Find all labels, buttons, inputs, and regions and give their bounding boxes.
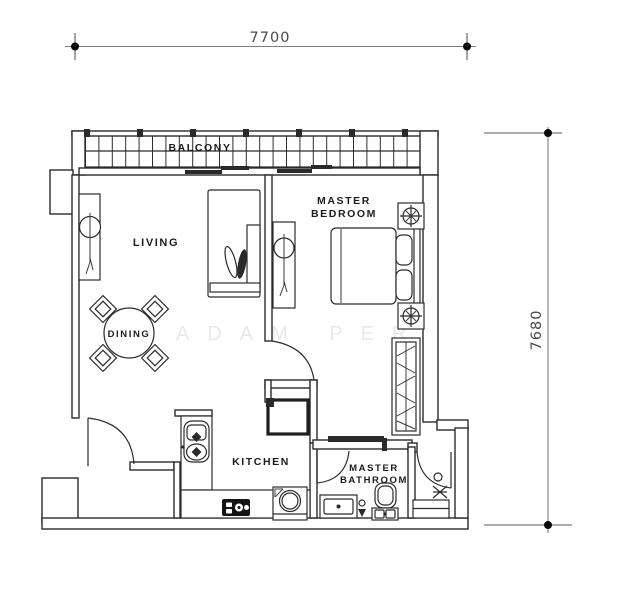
utility-cabinet bbox=[413, 500, 449, 518]
floor-lamp-living bbox=[79, 194, 101, 280]
dimension-right: 7680 bbox=[484, 127, 572, 533]
label-master-bedroom-1: MASTER bbox=[317, 195, 371, 207]
nightstand-top bbox=[398, 203, 424, 229]
sofa-console bbox=[208, 190, 260, 297]
cooktop bbox=[222, 499, 250, 516]
dimension-top-value: 7700 bbox=[250, 30, 291, 46]
label-balcony: BALCONY bbox=[168, 142, 231, 154]
shaft-column bbox=[266, 398, 308, 434]
bedroom-door bbox=[272, 341, 314, 380]
label-master-bathroom-1: MASTER bbox=[349, 463, 399, 474]
floor-plan-canvas: ADAM PERN 7700 7680 bbox=[0, 0, 623, 600]
floor-lamp-bedroom bbox=[273, 222, 295, 308]
kitchen-sink bbox=[181, 421, 209, 462]
entry-door bbox=[88, 418, 134, 466]
label-kitchen: KITCHEN bbox=[232, 456, 290, 468]
floor-trap-icon bbox=[358, 500, 366, 517]
label-master-bathroom-2: BATHROOM bbox=[340, 475, 408, 486]
washing-machine bbox=[273, 487, 307, 520]
utility-door bbox=[417, 452, 451, 488]
floor-plan-page: ADAM PERN 7700 7680 bbox=[0, 0, 623, 600]
label-master-bedroom-2: BEDROOM bbox=[311, 208, 377, 220]
wardrobe bbox=[392, 338, 420, 435]
label-dining: DINING bbox=[108, 329, 151, 340]
label-living: LIVING bbox=[133, 237, 179, 249]
vanity-sink bbox=[320, 495, 357, 518]
dimension-right-value: 7680 bbox=[529, 310, 545, 351]
dimension-top: 7700 bbox=[65, 30, 476, 60]
nightstand-bottom bbox=[398, 303, 424, 329]
bed bbox=[331, 228, 420, 304]
toilet bbox=[372, 483, 398, 520]
